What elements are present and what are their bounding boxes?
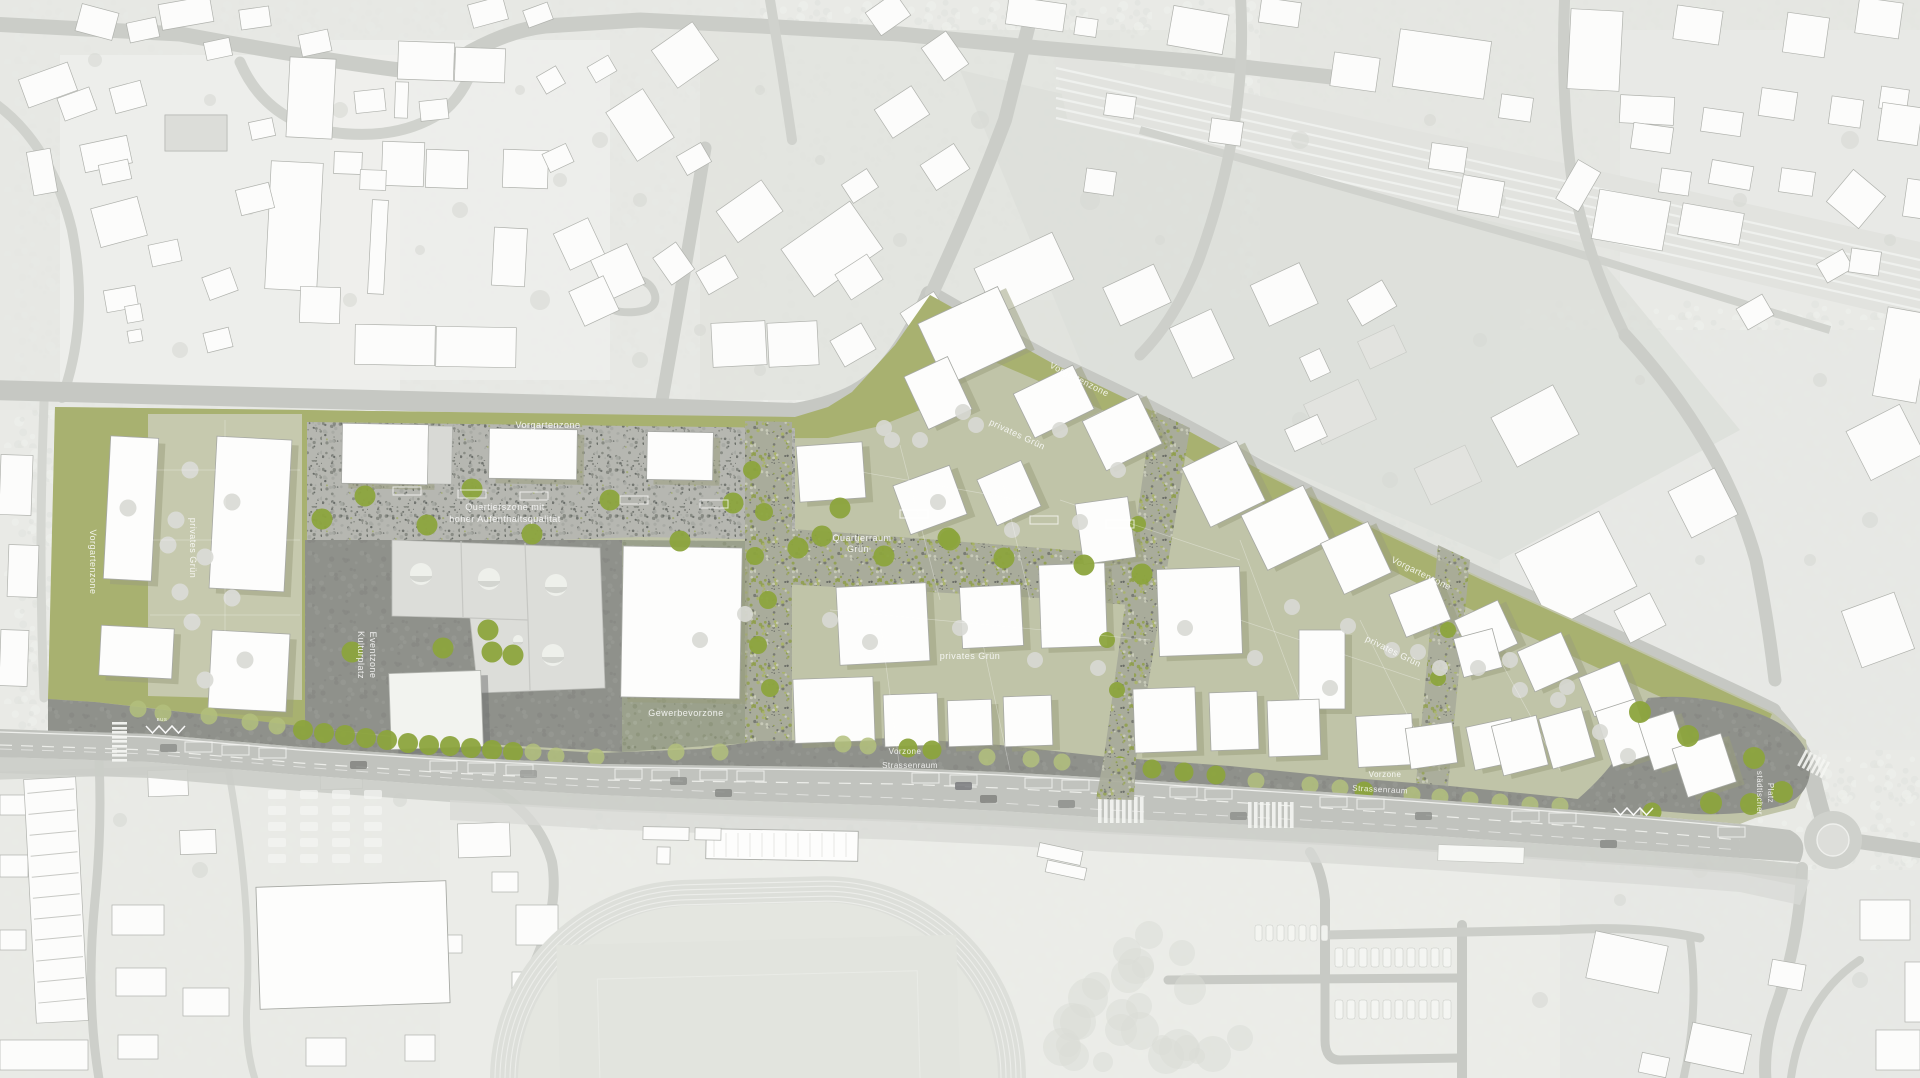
svg-text:Vorgartenzone: Vorgartenzone	[515, 420, 580, 430]
svg-text:Quartierraum: Quartierraum	[832, 533, 891, 543]
svg-text:Vorzone: Vorzone	[889, 747, 922, 756]
svg-text:Quartierszone mit: Quartierszone mit	[465, 502, 545, 512]
svg-text:hoher Aufenthaltsqualität: hoher Aufenthaltsqualität	[449, 514, 561, 524]
svg-text:privates Grün: privates Grün	[940, 651, 1001, 661]
svg-text:Eventzone: Eventzone	[368, 631, 378, 678]
svg-text:städtischer: städtischer	[1755, 771, 1764, 815]
svg-text:Grün: Grün	[847, 544, 869, 554]
svg-text:BUS: BUS	[157, 717, 168, 722]
svg-text:privates Grün: privates Grün	[188, 518, 198, 579]
svg-text:Vorzone: Vorzone	[1369, 770, 1402, 779]
svg-text:Strassenraum: Strassenraum	[882, 761, 938, 770]
svg-text:Vorgartenzone: Vorgartenzone	[88, 529, 98, 594]
svg-text:Platz: Platz	[1766, 783, 1775, 803]
svg-text:Kulturplatz: Kulturplatz	[356, 631, 366, 679]
svg-text:Gewerbevorzone: Gewerbevorzone	[648, 708, 724, 718]
